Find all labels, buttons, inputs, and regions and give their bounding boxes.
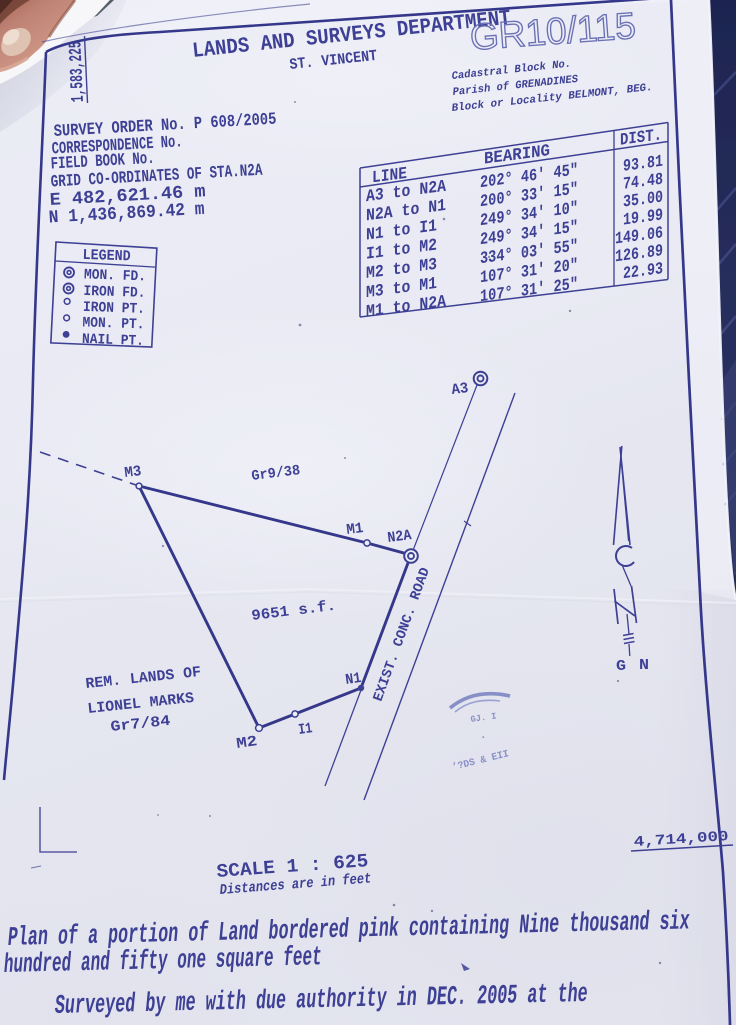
svg-text:M1: M1	[346, 520, 365, 539]
svg-text:N: N	[639, 657, 649, 674]
svg-text:MON. PT.: MON. PT.	[82, 315, 144, 333]
svg-text:I1: I1	[297, 720, 313, 739]
svg-text:M3: M3	[124, 463, 143, 482]
svg-text:IRON FD.: IRON FD.	[83, 284, 145, 302]
svg-text:A3: A3	[451, 380, 470, 399]
svg-text:G: G	[616, 658, 626, 675]
svg-text:LEGEND: LEGEND	[82, 247, 131, 265]
svg-text:N2A: N2A	[387, 527, 413, 547]
svg-text:MON. FD.: MON. FD.	[84, 267, 146, 285]
svg-text:.: .	[480, 730, 487, 742]
svg-text:N1: N1	[344, 670, 362, 689]
svg-text:NAIL PT.: NAIL PT.	[82, 332, 144, 350]
svg-text:M2: M2	[235, 733, 258, 753]
